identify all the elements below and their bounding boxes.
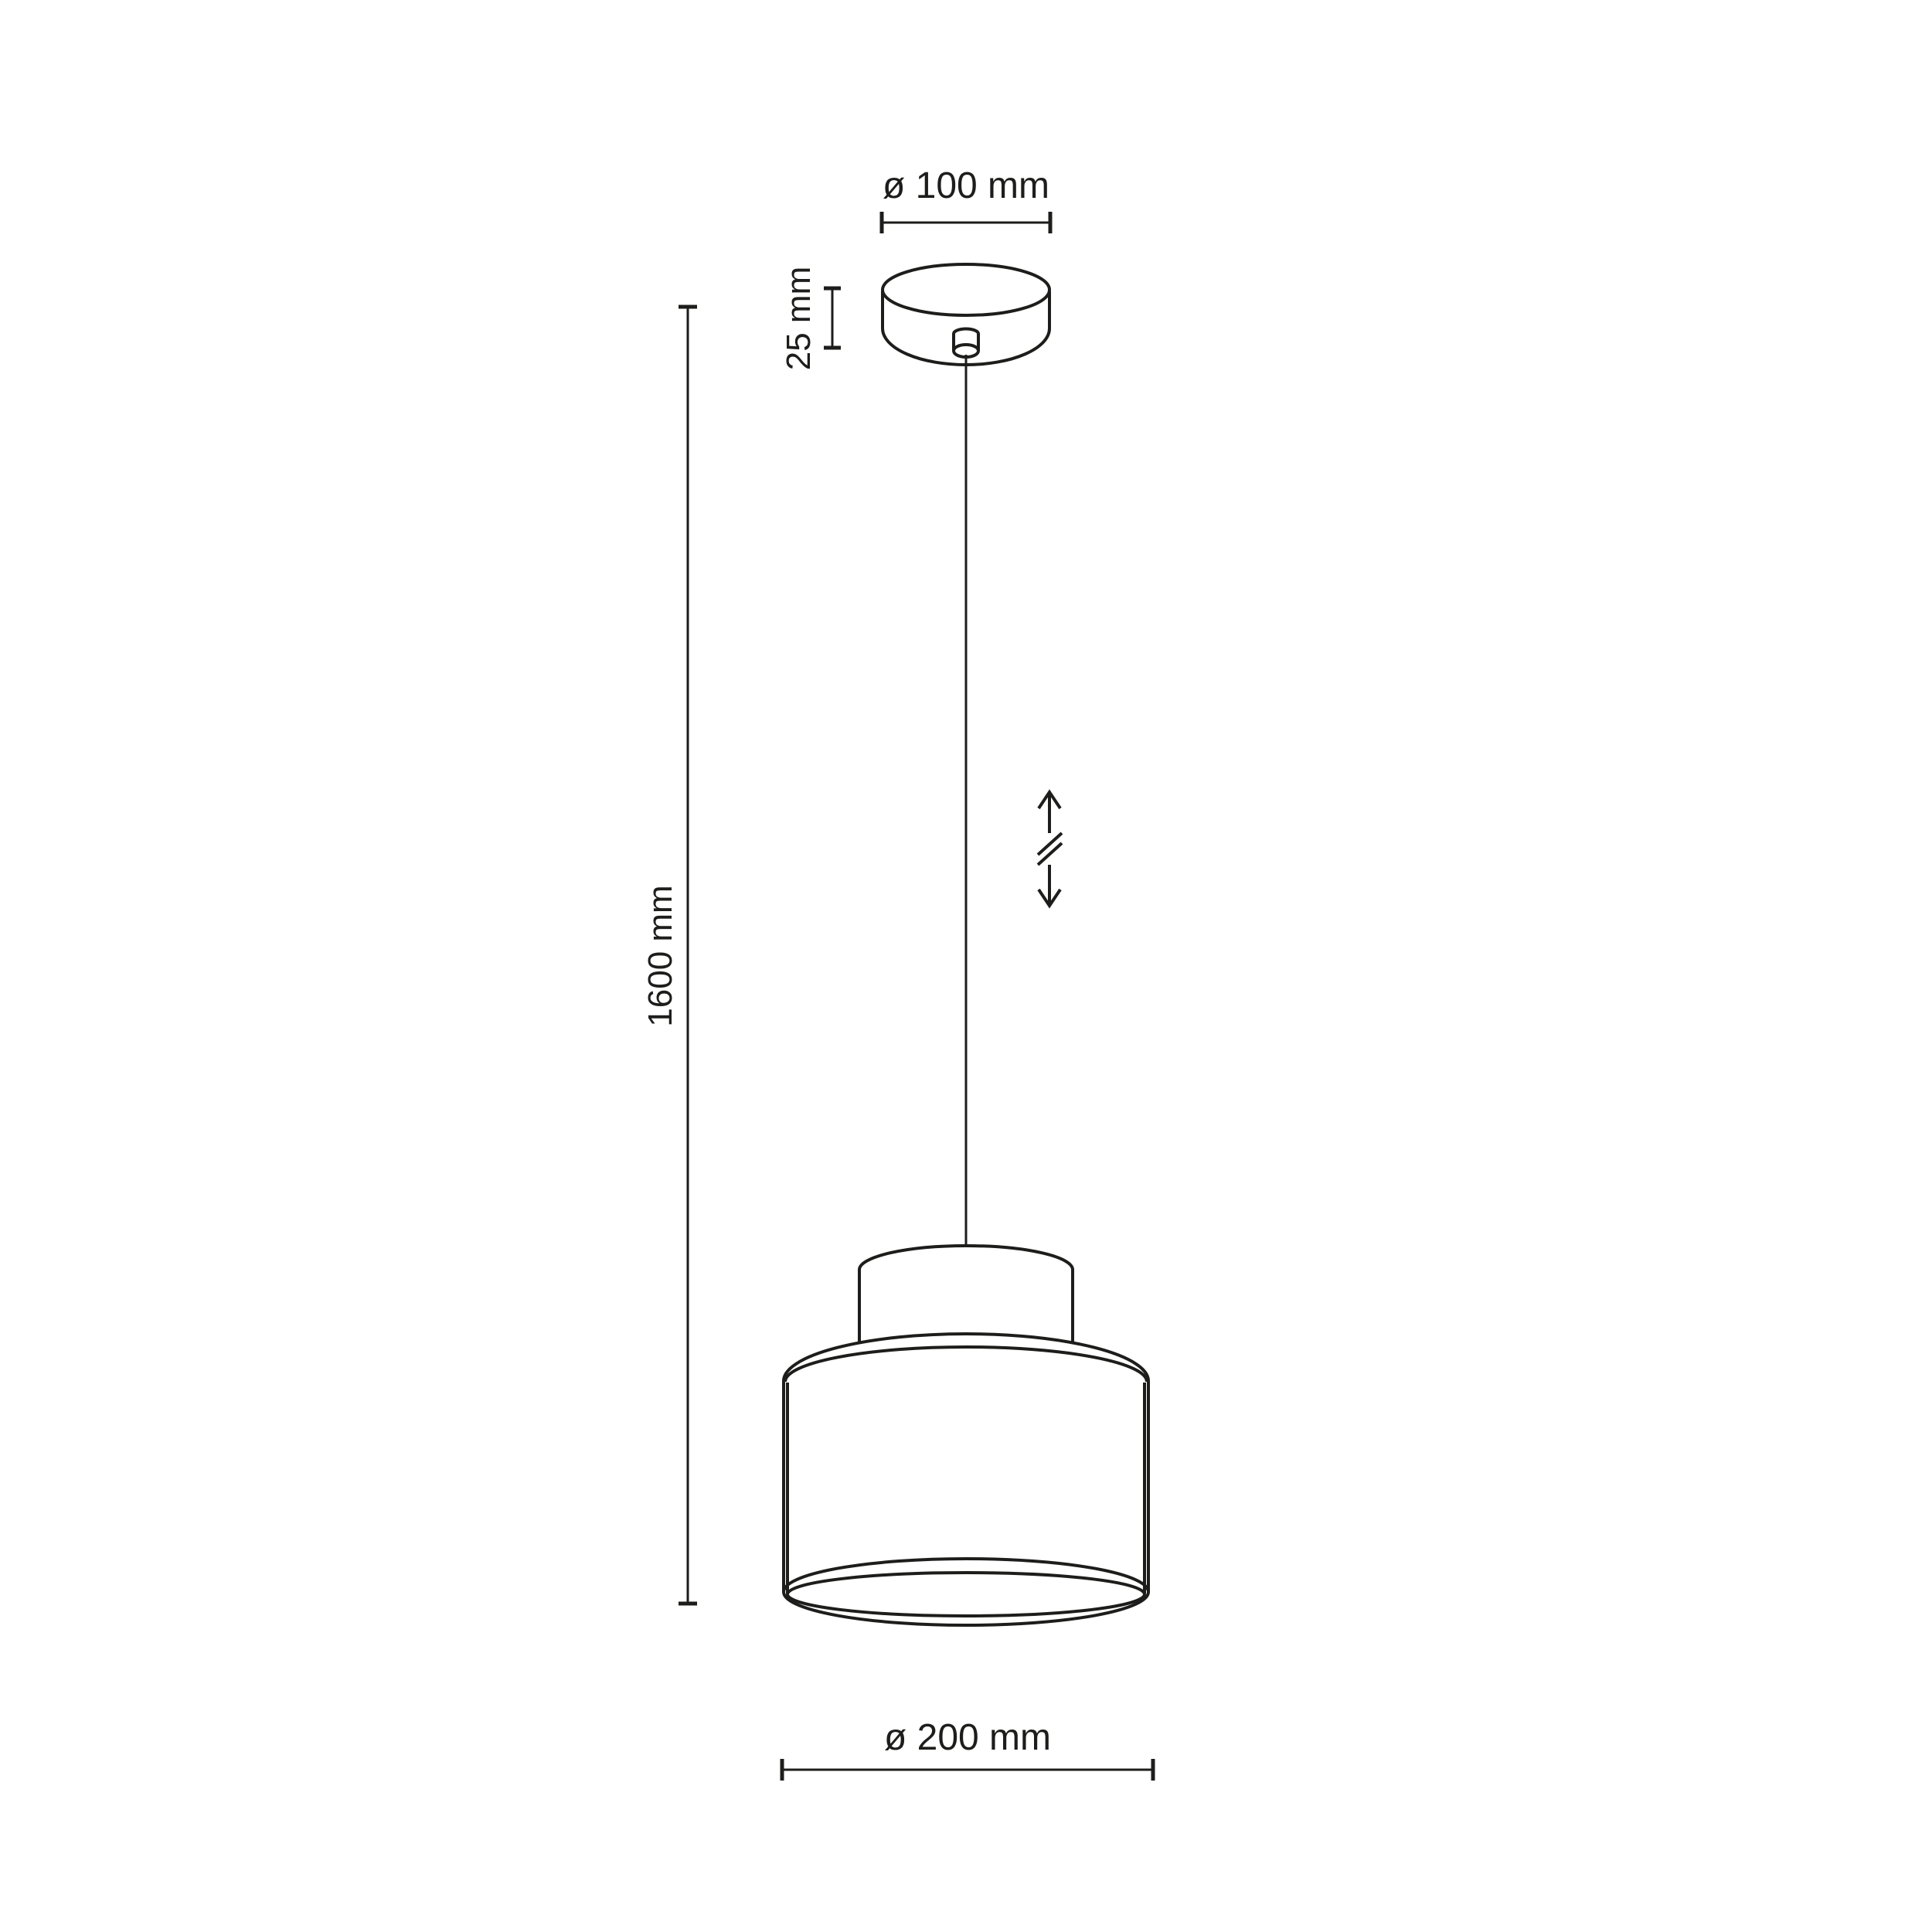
canopy-top-ellipse <box>883 264 1049 315</box>
lamp-neck <box>859 1246 1073 1342</box>
shade-diameter-label: ø 200 mm <box>884 1717 1051 1758</box>
ceiling-canopy <box>883 264 1049 365</box>
shade-top-rim-inner-arc <box>785 1347 1147 1382</box>
cable-gland <box>954 329 978 358</box>
shade-bottom-inner-ellipse <box>787 1573 1145 1616</box>
break-slash <box>1038 843 1062 865</box>
suspension-length-label: 1600 mm <box>641 885 679 1026</box>
break-slash <box>1038 833 1062 855</box>
dimension-canopy-height: 25 mm <box>780 267 841 370</box>
canopy-height-label: 25 mm <box>780 267 818 370</box>
lamp-shade <box>784 1334 1148 1625</box>
gland-top-arc <box>954 329 978 335</box>
pendant-lamp-dimension-diagram: ø 100 mm 25 mm <box>0 0 1932 1932</box>
dimension-shade-diameter: ø 200 mm <box>782 1717 1153 1781</box>
neck-top-arc <box>859 1246 1073 1270</box>
diagram-canvas: ø 100 mm 25 mm <box>0 0 1932 1932</box>
dimension-suspension-length: 1600 mm <box>641 307 697 1604</box>
height-adjustable-double-arrow-icon <box>1038 792 1062 906</box>
dimension-canopy-diameter: ø 100 mm <box>882 165 1050 233</box>
canopy-diameter-label: ø 100 mm <box>883 165 1049 206</box>
